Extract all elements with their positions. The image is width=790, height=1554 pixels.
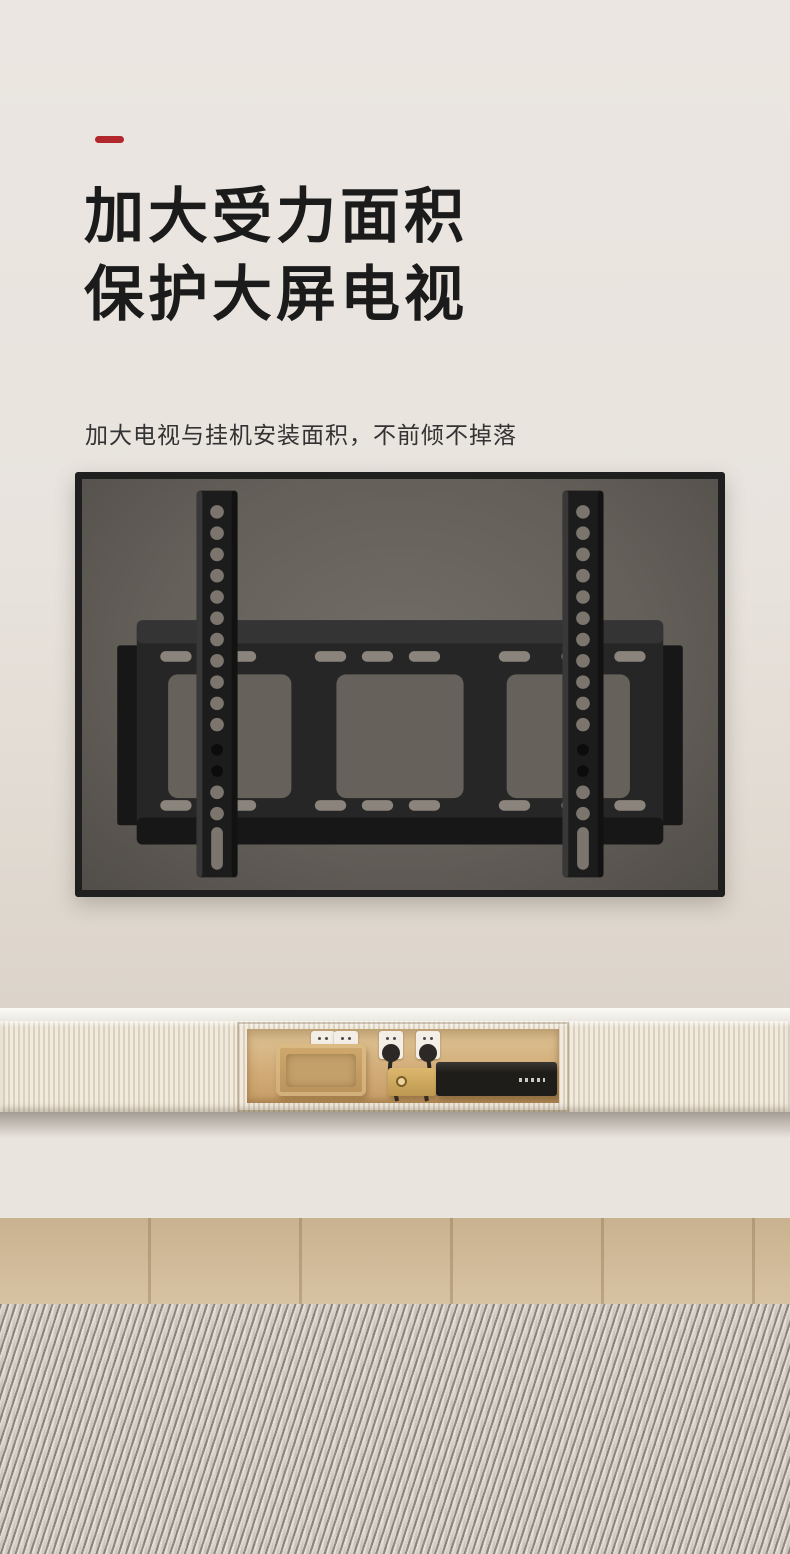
page: 加大受力面积 保护大屏电视 加大电视与挂机安装面积，不前倾不掉落 [0, 0, 790, 1554]
console-countertop [0, 1008, 790, 1021]
title-line-2: 保护大屏电视 [84, 256, 468, 334]
accent-dash [95, 136, 124, 143]
console-niche [237, 1022, 569, 1112]
scene-section: 大屏挂架 稳固不晃 加大安装部位接触面积 大屏也能稳固不晃 多钉抓墙 防脱落 稳… [0, 1008, 790, 1554]
title-line-1: 加大受力面积 [84, 178, 468, 256]
niche-interior [247, 1029, 559, 1103]
product-panel [75, 472, 725, 897]
subtitle: 加大电视与挂机安装面积，不前倾不掉落 [85, 416, 517, 450]
carpet [0, 1304, 790, 1554]
wood-floor [0, 1218, 790, 1304]
hero-section: 加大受力面积 保护大屏电视 加大电视与挂机安装面积，不前倾不掉落 [0, 0, 790, 1008]
console-shadow [0, 1112, 790, 1138]
speaker [276, 1044, 366, 1096]
media-player [436, 1062, 557, 1096]
page-title: 加大受力面积 保护大屏电视 [84, 178, 468, 334]
tv-mount-graphic-main [82, 479, 718, 890]
mini-amp [388, 1068, 436, 1096]
